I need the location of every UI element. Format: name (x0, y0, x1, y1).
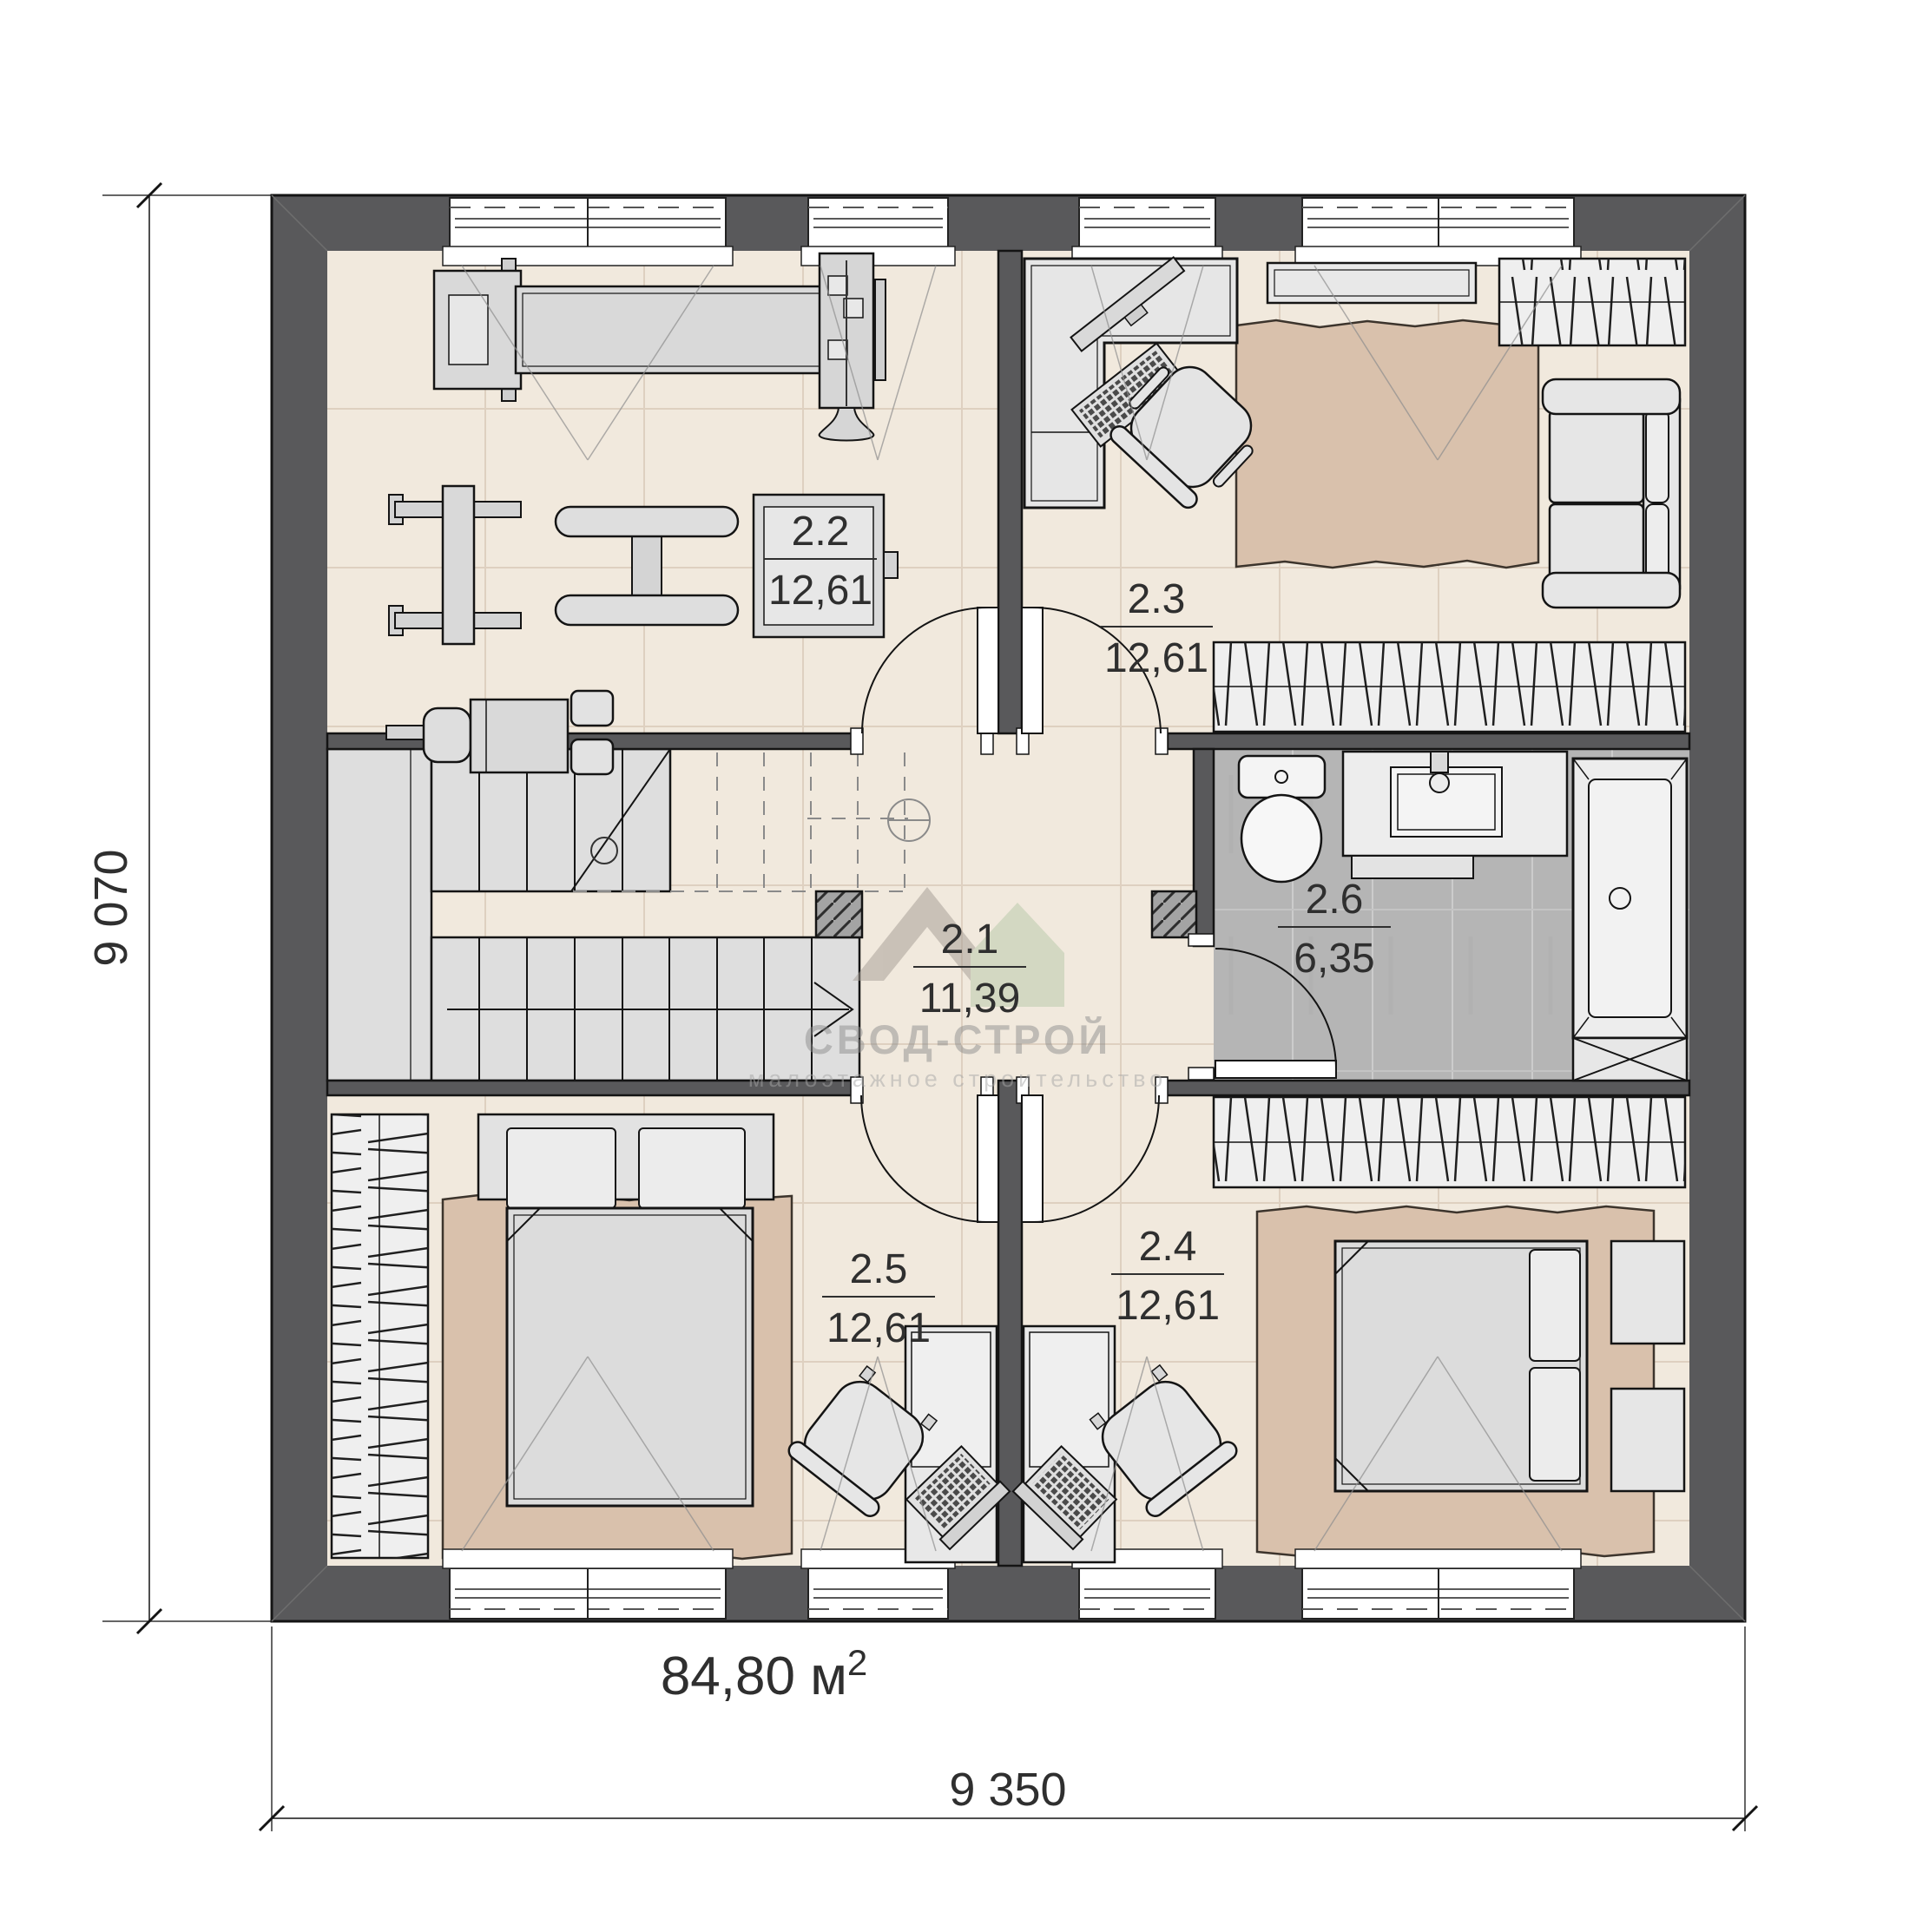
window-bottom-4 (1295, 1549, 1581, 1619)
dimension-left: 9 070 (85, 183, 278, 1633)
sofa (1543, 379, 1680, 608)
floor-plan-page: 9 070 9 350 84,80 м2 (0, 0, 1916, 1932)
svg-text:6,35: 6,35 (1294, 936, 1374, 982)
dimension-bottom: 9 350 (260, 1626, 1757, 1831)
dim-bottom-label: 9 350 (949, 1764, 1066, 1816)
window-top-3 (1072, 198, 1222, 266)
floor-plan-drawing: 9 070 9 350 84,80 м2 (0, 0, 1916, 1932)
svg-text:12,61: 12,61 (1116, 1283, 1220, 1329)
window-top-4 (1295, 198, 1581, 266)
window-bottom-1 (443, 1549, 733, 1619)
svg-text:2.4: 2.4 (1139, 1224, 1197, 1270)
double-bed-2-4 (1335, 1241, 1587, 1491)
svg-text:2.2: 2.2 (792, 509, 850, 555)
watermark-subtitle: малоэтажное строительство (748, 1066, 1167, 1092)
rug-bedroom-top-right (1236, 320, 1538, 568)
wardrobe-bottom-2-3 (1214, 642, 1685, 732)
bathtub (1573, 759, 1687, 1038)
toilet (1239, 756, 1325, 882)
total-area-label: 84,80 м2 (661, 1642, 867, 1706)
svg-text:2.5: 2.5 (850, 1246, 908, 1292)
svg-text:2.1: 2.1 (941, 917, 999, 963)
dim-left-label: 9 070 (85, 849, 137, 966)
svg-text:2.6: 2.6 (1306, 877, 1364, 923)
svg-text:12,61: 12,61 (1104, 635, 1208, 681)
svg-text:11,39: 11,39 (919, 976, 1021, 1022)
window-top-1 (443, 198, 733, 266)
nightstand-2 (1611, 1389, 1684, 1491)
watermark-title: СВОД-СТРОЙ (804, 1016, 1111, 1062)
double-bed (478, 1114, 774, 1506)
svg-text:12,61: 12,61 (768, 568, 872, 614)
wardrobe-top-right (1499, 259, 1685, 345)
bed-headboard (1267, 263, 1476, 303)
wardrobe-left (332, 1114, 428, 1558)
wardrobe-top-2-4 (1214, 1097, 1685, 1187)
svg-text:12,61: 12,61 (826, 1305, 931, 1351)
nightstand-1 (1611, 1241, 1684, 1344)
svg-text:2.3: 2.3 (1128, 576, 1186, 622)
laundry-box (1573, 1038, 1687, 1081)
